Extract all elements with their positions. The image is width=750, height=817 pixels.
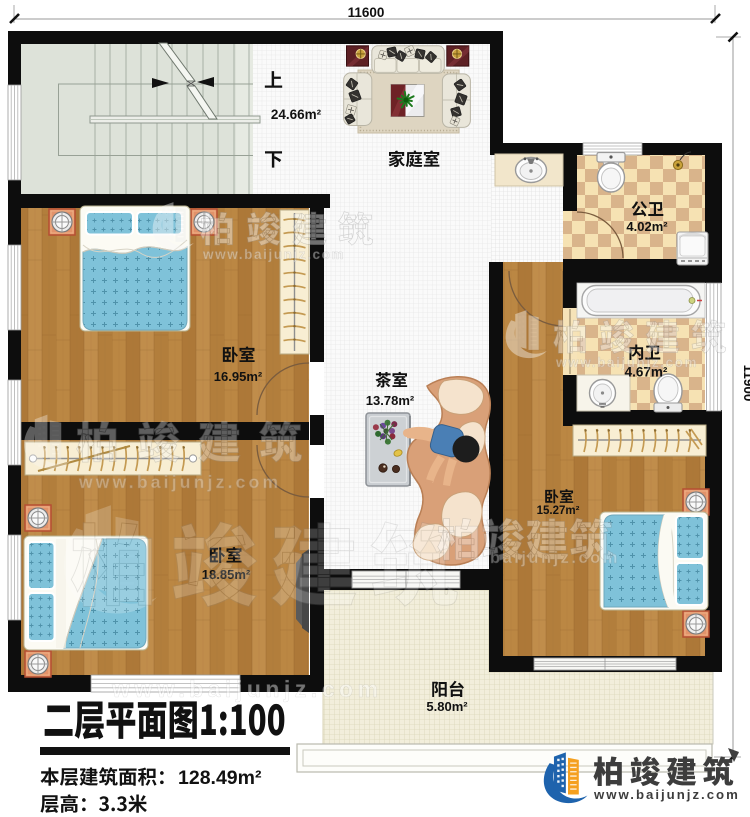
svg-text:5.80m²: 5.80m² bbox=[426, 699, 468, 714]
svg-text:www.baijunjz.com: www.baijunjz.com bbox=[78, 472, 281, 492]
svg-text:www.baijunjz.com: www.baijunjz.com bbox=[593, 787, 740, 802]
svg-text:128.49m²: 128.49m² bbox=[178, 767, 262, 789]
svg-text:24.66m²: 24.66m² bbox=[271, 107, 322, 122]
svg-text:13.78m²: 13.78m² bbox=[366, 393, 415, 408]
svg-text:16.95m²: 16.95m² bbox=[214, 369, 263, 384]
svg-text:baijunjz.com: baijunjz.com bbox=[490, 549, 620, 567]
svg-text:www.baijunjz.com: www.baijunjz.com bbox=[111, 676, 383, 702]
svg-text:15.27m²: 15.27m² bbox=[537, 505, 580, 517]
svg-text:www.baijunjz.com: www.baijunjz.com bbox=[202, 247, 345, 262]
svg-text:www.baijunjz.com: www.baijunjz.com bbox=[555, 355, 698, 370]
svg-text:11600: 11600 bbox=[348, 5, 385, 20]
svg-text:11900: 11900 bbox=[741, 365, 750, 402]
svg-text:4.02m²: 4.02m² bbox=[626, 219, 668, 234]
